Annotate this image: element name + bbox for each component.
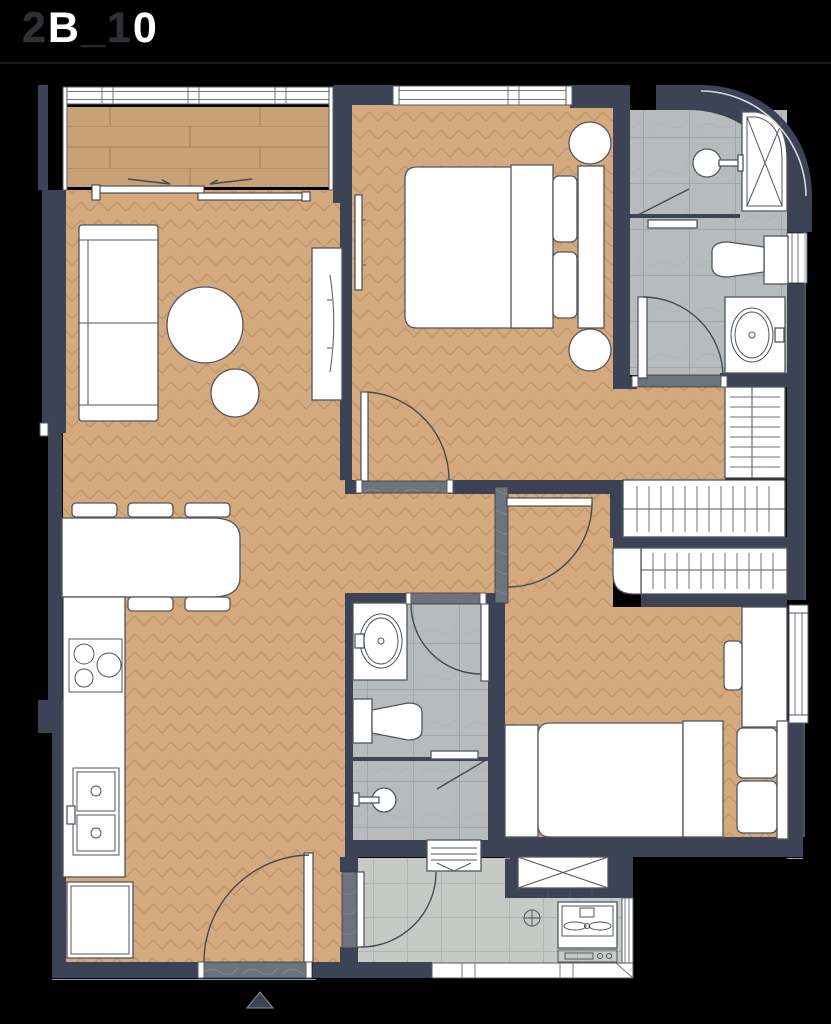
dining-chair [128, 597, 173, 611]
pillow [553, 176, 577, 242]
wardrobe-a [623, 480, 785, 537]
bathroom-1-window [787, 233, 807, 283]
bed-runner [683, 721, 723, 837]
desk [742, 607, 787, 727]
dining-area [62, 503, 240, 611]
nightstand [569, 329, 611, 371]
pillow [737, 728, 777, 778]
faucet [775, 328, 784, 342]
tv-console [312, 248, 342, 400]
coffee-table-small [211, 369, 259, 417]
floorplan-drawing [0, 0, 831, 1024]
faucet [355, 634, 364, 648]
bed-duvet [538, 723, 683, 837]
headboard [777, 721, 788, 839]
marble-pier [495, 487, 508, 603]
entry-marker-icon [247, 992, 273, 1008]
bed-runner [511, 165, 553, 328]
kitchen-faucet [67, 806, 75, 824]
shower-divider-1 [630, 214, 740, 218]
pillow [737, 781, 777, 833]
dining-chair [128, 503, 173, 517]
balcony-floor [65, 107, 333, 187]
wardrobe-end [613, 548, 641, 594]
dining-chair [185, 597, 230, 611]
wall-break [40, 423, 48, 436]
shower-glass-1 [648, 220, 697, 228]
dining-chair [72, 503, 117, 517]
vent-cabinet [427, 840, 481, 871]
bedroom-1-window [393, 86, 572, 105]
dressing-corridor-floor [613, 385, 725, 480]
bedroom-2-window [789, 605, 808, 723]
vanity-1 [725, 297, 785, 373]
headboard [578, 166, 604, 328]
kitchen [63, 597, 133, 958]
nightstand [569, 122, 611, 164]
desk-chair [724, 641, 742, 690]
shower-glass-2 [431, 751, 478, 759]
bed-bench [505, 725, 538, 837]
vanity-2 [353, 603, 407, 680]
ac-unit [518, 857, 608, 888]
floorplan-canvas: 2B_10 [0, 0, 831, 1024]
sofa [79, 225, 158, 421]
floor-drain [524, 910, 540, 926]
dining-table [62, 518, 240, 597]
dining-chair [185, 503, 230, 517]
pillow [553, 252, 577, 318]
entry-threshold [203, 962, 307, 978]
fridge [67, 882, 133, 958]
coffee-table-large [167, 287, 243, 363]
wardrobe-b [613, 548, 787, 594]
linen-shelves [725, 387, 785, 478]
